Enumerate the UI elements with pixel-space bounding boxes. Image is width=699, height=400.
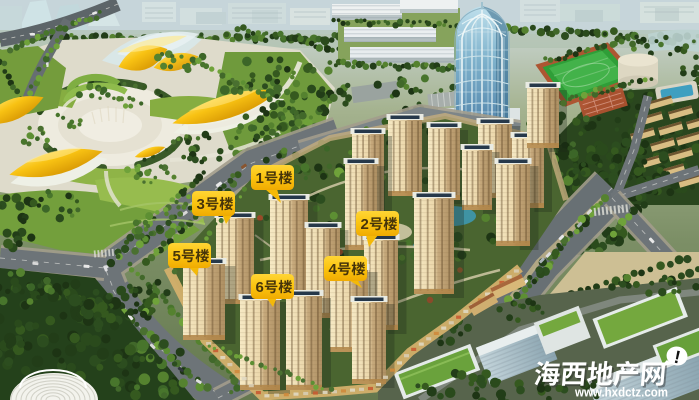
svg-text:4: 4: [329, 261, 338, 278]
svg-text:5: 5: [173, 248, 181, 265]
svg-text:6: 6: [256, 279, 264, 296]
svg-text:3: 3: [197, 196, 205, 213]
svg-text:2: 2: [361, 216, 369, 233]
svg-text:1: 1: [256, 170, 264, 187]
svg-text:www.hxdctz.com: www.hxdctz.com: [574, 386, 668, 400]
